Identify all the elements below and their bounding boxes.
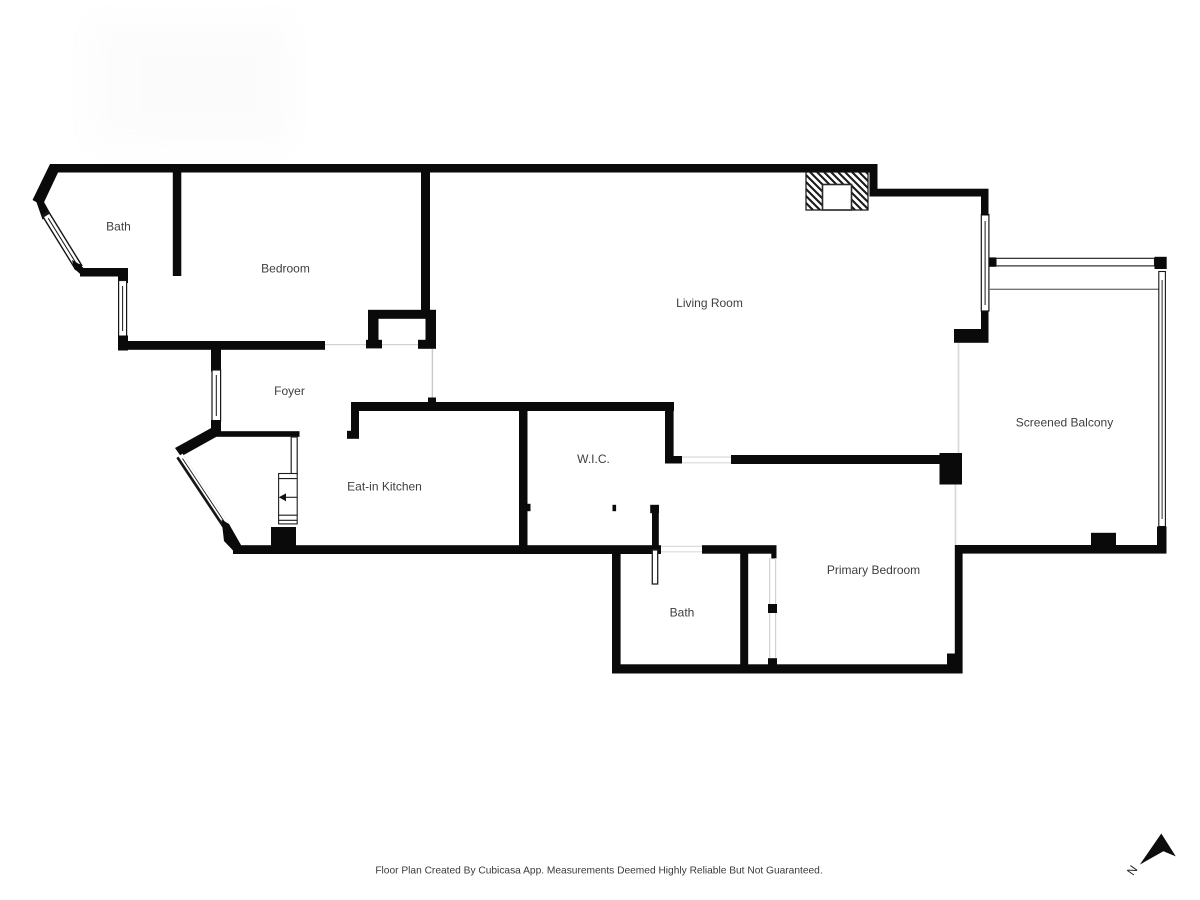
svg-text:Eat-in Kitchen: Eat-in Kitchen (347, 479, 422, 493)
svg-text:Bath: Bath (106, 220, 131, 234)
svg-text:W.I.C.: W.I.C. (577, 452, 610, 466)
svg-text:Foyer: Foyer (274, 384, 305, 398)
svg-text:Bedroom: Bedroom (261, 262, 310, 276)
svg-text:Floor Plan Created By Cubicasa: Floor Plan Created By Cubicasa App. Meas… (375, 866, 822, 877)
svg-text:Living Room: Living Room (676, 296, 743, 310)
svg-text:Bath: Bath (670, 605, 695, 619)
svg-text:Screened Balcony: Screened Balcony (1016, 415, 1113, 429)
svg-text:Primary Bedroom: Primary Bedroom (827, 563, 920, 577)
